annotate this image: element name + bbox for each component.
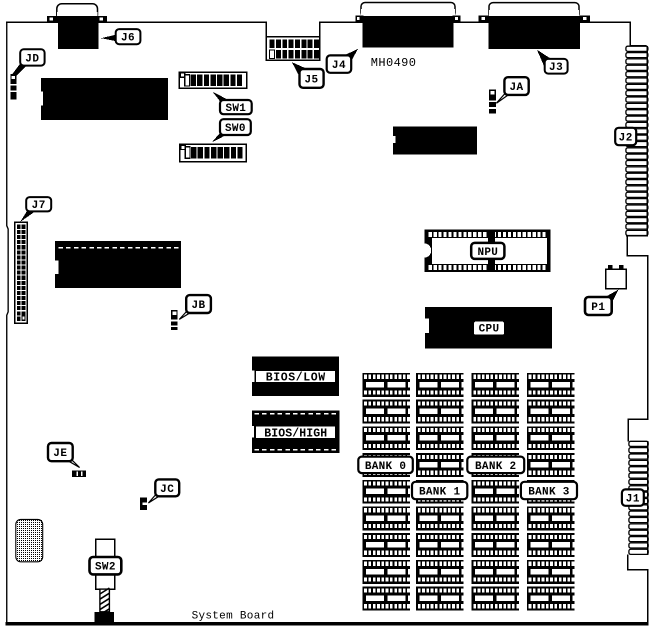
svg-text:J5: J5 [304, 74, 318, 86]
svg-text:J2: J2 [619, 132, 633, 144]
svg-text:JE: JE [53, 448, 67, 460]
svg-text:SW0: SW0 [225, 123, 246, 135]
svg-text:JD: JD [25, 53, 39, 65]
svg-text:J4: J4 [332, 60, 346, 72]
svg-text:BANK 1: BANK 1 [419, 486, 461, 498]
svg-text:SW2: SW2 [95, 562, 116, 574]
svg-text:J3: J3 [549, 62, 563, 74]
svg-text:JA: JA [509, 82, 523, 94]
svg-text:BANK 3: BANK 3 [528, 486, 570, 498]
svg-text:CPU: CPU [479, 324, 500, 336]
svg-text:BIOS/HIGH: BIOS/HIGH [264, 427, 327, 440]
svg-text:System Board: System Board [192, 610, 275, 622]
svg-text:JC: JC [160, 484, 174, 496]
svg-text:BIOS/LOW: BIOS/LOW [266, 372, 326, 385]
svg-text:MH0490: MH0490 [371, 56, 417, 70]
svg-text:JB: JB [191, 300, 205, 312]
svg-text:BANK 0: BANK 0 [365, 461, 406, 473]
svg-text:J6: J6 [121, 33, 135, 45]
svg-text:J7: J7 [32, 200, 46, 212]
svg-text:P1: P1 [591, 302, 605, 314]
svg-text:BANK 2: BANK 2 [475, 461, 516, 473]
svg-text:J1: J1 [626, 494, 640, 506]
svg-text:NPU: NPU [477, 247, 498, 259]
svg-text:SW1: SW1 [225, 103, 246, 115]
